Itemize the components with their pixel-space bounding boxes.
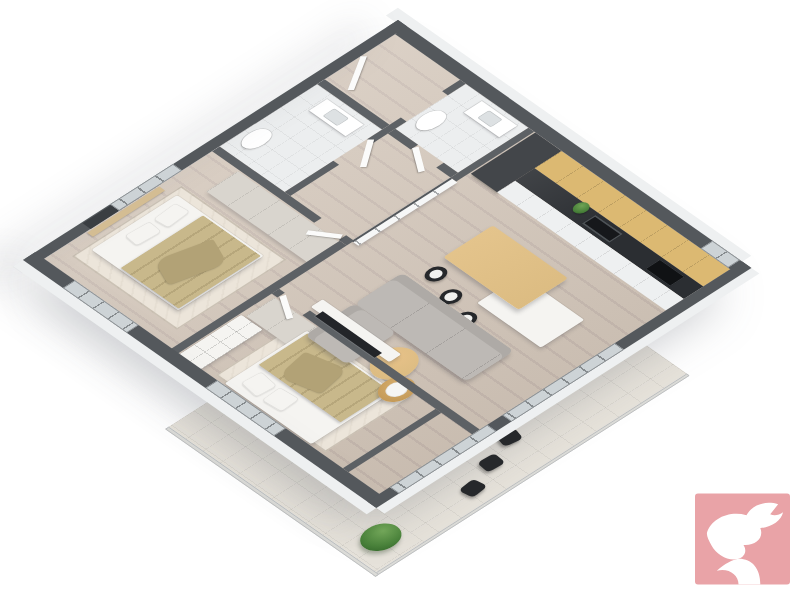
apartment-plan (0, 20, 800, 586)
floorplan-render (0, 0, 800, 600)
dove-logo (695, 493, 790, 585)
